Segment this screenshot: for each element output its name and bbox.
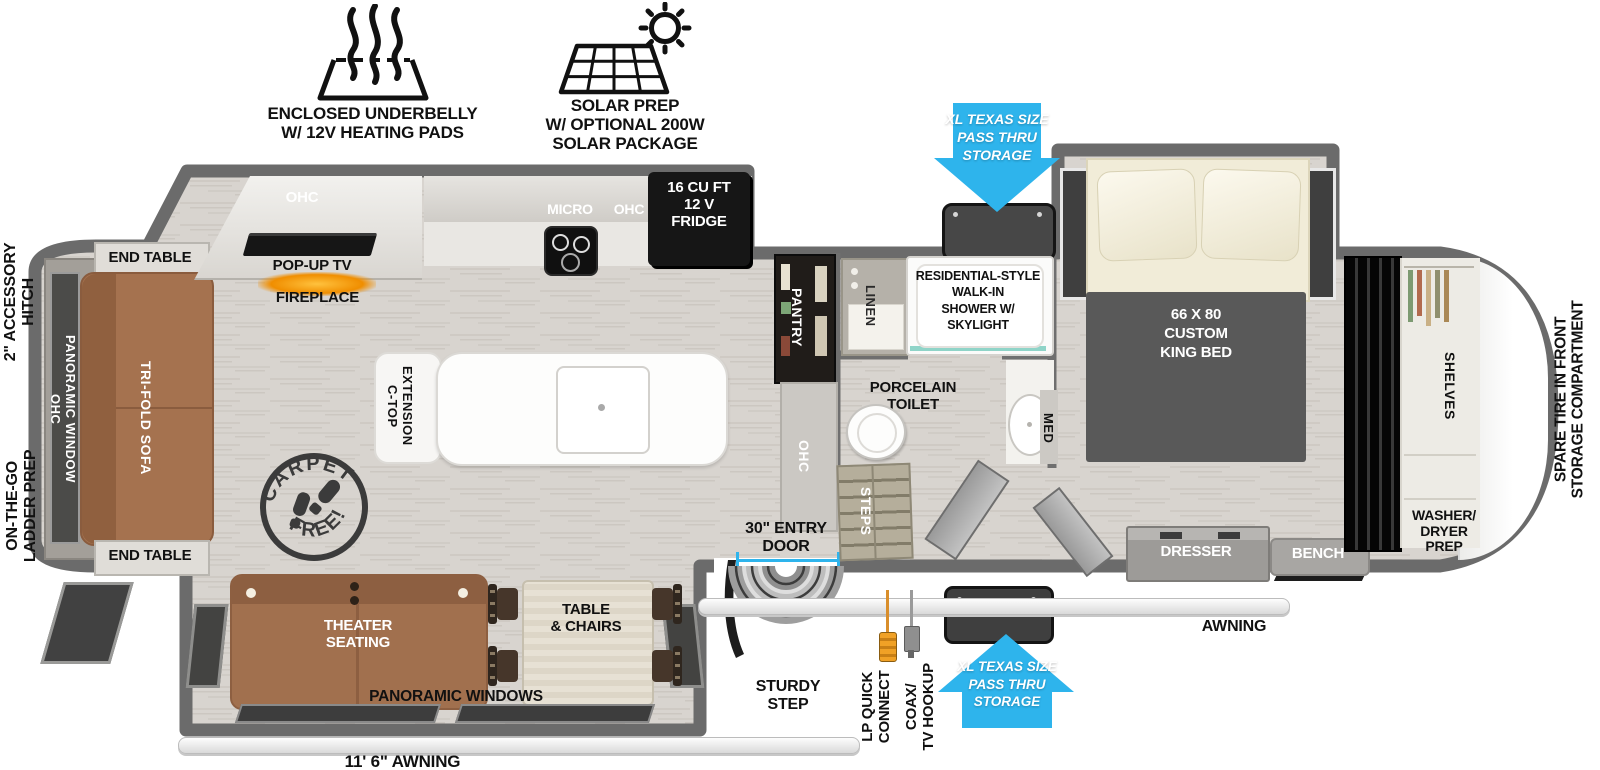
- console-cupholder: [350, 596, 359, 605]
- pantry-shelf-item: [815, 266, 827, 302]
- sturdy-step-label: STURDY STEP: [734, 678, 842, 714]
- dinette-chair: [652, 584, 682, 624]
- handle: [1160, 532, 1182, 539]
- spare-tire-label: SPARE TIRE IN FRONT STORAGE COMPARTMENT: [1553, 289, 1588, 509]
- panoramic-window-strip: [455, 704, 655, 723]
- steps-label: STEPS: [858, 474, 874, 548]
- dinette-label: TABLE & CHAIRS: [528, 602, 644, 636]
- sofa-backrest: [82, 274, 116, 544]
- awning-bar-left: [178, 737, 860, 754]
- awning-bar-right: [698, 598, 1290, 615]
- cupholder: [458, 588, 468, 598]
- closet-rail: [1404, 266, 1474, 268]
- awning-label: AWNING: [1176, 618, 1292, 636]
- pantry-label: PANTRY: [789, 264, 805, 370]
- living-ohc-label: OHC: [270, 190, 334, 207]
- micro-label: MICRO: [534, 202, 606, 218]
- kitchen-ohc-label: OHC: [604, 202, 654, 218]
- hanging-clothes: [1417, 270, 1422, 316]
- theater-label: THEATER SEATING: [286, 618, 430, 652]
- end-table-top-label: END TABLE: [94, 250, 206, 267]
- awning-length-label: 11' 6" AWNING: [305, 752, 500, 770]
- coax-label: COAX/ TV HOOKUP: [904, 645, 938, 769]
- ctop-extension-label: C-TOP EXTENSION: [384, 360, 414, 452]
- coax-cable: [910, 590, 913, 630]
- pass-thru-top-label: XL TEXAS SIZE PASS THRU STORAGE: [941, 110, 1053, 165]
- king-bed-label: 66 X 80 CUSTOM KING BED: [1086, 306, 1306, 362]
- theater-backrest: [232, 576, 486, 604]
- toilet-seat: [857, 413, 897, 453]
- shower-label: RESIDENTIAL-STYLE WALK-IN SHOWER W/ SKYL…: [914, 268, 1042, 333]
- solar-prep-icon: [555, 2, 700, 98]
- pillow: [1200, 168, 1301, 261]
- lp-hose: [886, 590, 889, 636]
- linen-label: LINEN: [862, 266, 877, 346]
- shelf-line: [1404, 498, 1476, 500]
- solar-label: SOLAR PREP W/ OPTIONAL 200W SOLAR PACKAG…: [515, 96, 735, 153]
- kitchen-island: [436, 352, 728, 466]
- bed-slide-window: [1306, 168, 1336, 300]
- toilet: [846, 404, 906, 460]
- sofa-seam: [116, 407, 212, 409]
- dinette-chair: [488, 584, 518, 624]
- sink-drain: [598, 404, 605, 411]
- accessory-hitch-label: 2" ACCESSORY HITCH: [2, 237, 38, 367]
- pillow: [1096, 168, 1197, 261]
- panoramic-windows-label: PANORAMIC WINDOWS: [348, 688, 564, 705]
- interior-steps: [836, 463, 913, 562]
- cooktop: [544, 226, 598, 276]
- console-cupholder: [350, 582, 359, 591]
- rear-window-label: OHC PANORAMIC WINDOW: [47, 300, 77, 518]
- shelf-line: [1404, 454, 1476, 456]
- hanging-clothes: [1435, 270, 1440, 318]
- burner: [573, 236, 590, 253]
- cupholder: [246, 588, 256, 598]
- dresser-label: DRESSER: [1126, 544, 1266, 561]
- dinette-chair: [488, 646, 518, 686]
- sturdy-step: [722, 560, 850, 682]
- knob: [851, 268, 858, 275]
- hall-ohc-label: OHC: [796, 410, 812, 502]
- burner: [552, 234, 569, 251]
- ladder-prep-label: ON-THE-GO LADDER PREP: [4, 441, 40, 571]
- pass-thru-bottom-label: XL TEXAS SIZE PASS THRU STORAGE: [948, 658, 1066, 711]
- burner: [561, 253, 580, 272]
- hanging-clothes: [1408, 270, 1413, 322]
- med-label: MED: [1040, 398, 1055, 458]
- front-closet: [1400, 258, 1480, 548]
- lp-quick-connect-label: LP QUICK CONNECT: [860, 647, 894, 767]
- sink-drain: [1027, 422, 1032, 427]
- hanging-clothes: [1444, 270, 1449, 322]
- hanging-clothes: [1426, 270, 1431, 326]
- carpet-free-stamp: CARPET FREE!: [252, 446, 376, 568]
- fireplace-label: FIREPLACE: [250, 290, 385, 307]
- washer-dryer-label: WASHER/ DRYER PREP: [1392, 508, 1496, 555]
- end-table-bottom-label: END TABLE: [94, 548, 206, 565]
- sofa-label: TRI-FOLD SOFA: [138, 338, 154, 498]
- popup-tv: [243, 233, 378, 256]
- floorplan-canvas: ENCLOSED UNDERBELLY W/ 12V HEATING PADS …: [0, 0, 1600, 770]
- handle: [1218, 532, 1240, 539]
- underbelly-label: ENCLOSED UNDERBELLY W/ 12V HEATING PADS: [245, 104, 500, 142]
- entry-door-label: 30" ENTRY DOOR: [724, 520, 848, 556]
- heating-pads-icon: [298, 4, 448, 104]
- island-sink: [556, 366, 650, 454]
- knob: [851, 282, 858, 289]
- panoramic-window-strip: [235, 704, 441, 723]
- fridge-label: 16 CU FT 12 V FRIDGE: [648, 180, 750, 230]
- dinette-chair: [652, 646, 682, 686]
- shelves-label: SHELVES: [1442, 332, 1458, 440]
- pantry-shelf-item: [815, 316, 827, 356]
